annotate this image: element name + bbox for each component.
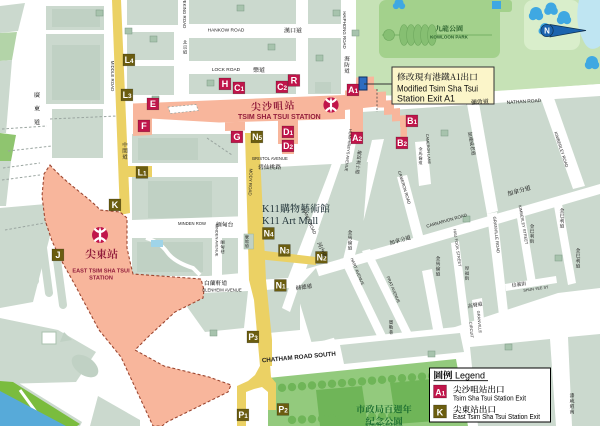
svg-text:URBAN COUNCIL: URBAN COUNCIL xyxy=(365,422,403,426)
svg-text:East Tsim Sha Tsui Station Exi: East Tsim Sha Tsui Station Exit xyxy=(453,412,540,421)
svg-text:N: N xyxy=(544,26,550,35)
svg-text:R: R xyxy=(291,76,298,86)
svg-text:MODY ROAD: MODY ROAD xyxy=(248,168,254,195)
svg-text:H: H xyxy=(222,79,229,89)
svg-text:Modified Tsim Sha Tsui: Modified Tsim Sha Tsui xyxy=(397,84,478,94)
svg-text:EAST TSIM SHA TSUI: EAST TSIM SHA TSUI xyxy=(72,269,130,275)
svg-text:K: K xyxy=(437,407,444,417)
svg-text:G: G xyxy=(233,132,240,142)
svg-text:BRISTOL AVENUE: BRISTOL AVENUE xyxy=(252,156,288,161)
svg-text:MINDEN AVENUE: MINDEN AVENUE xyxy=(215,224,220,257)
svg-text:Station Exit A1: Station Exit A1 xyxy=(397,94,455,104)
svg-text:Tsim Sha Tsui Station Exit: Tsim Sha Tsui Station Exit xyxy=(453,394,526,403)
svg-text:K11: K11 xyxy=(262,204,280,215)
svg-text:PEKING ROAD: PEKING ROAD xyxy=(182,0,187,28)
svg-text:HAIPHONG ROAD: HAIPHONG ROAD xyxy=(342,11,347,48)
svg-text:MINDEN ROW: MINDEN ROW xyxy=(178,221,206,226)
svg-text:J: J xyxy=(55,250,60,260)
svg-text:MIDDLE ROAD: MIDDLE ROAD xyxy=(110,61,115,92)
svg-text:BLENHEIM AVENUE: BLENHEIM AVENUE xyxy=(202,288,241,293)
svg-text:K: K xyxy=(112,200,119,210)
svg-text:E: E xyxy=(150,99,156,109)
svg-text:HANKOW ROAD: HANKOW ROAD xyxy=(208,28,245,34)
svg-text:KOWLOON PARK: KOWLOON PARK xyxy=(430,35,468,40)
svg-text:F: F xyxy=(141,121,147,131)
svg-text:LOCK ROAD: LOCK ROAD xyxy=(212,67,241,73)
svg-text:Legend: Legend xyxy=(455,371,485,381)
svg-text:TSIM SHA TSUI STATION: TSIM SHA TSUI STATION xyxy=(238,114,321,121)
svg-text:STATION: STATION xyxy=(89,276,113,282)
